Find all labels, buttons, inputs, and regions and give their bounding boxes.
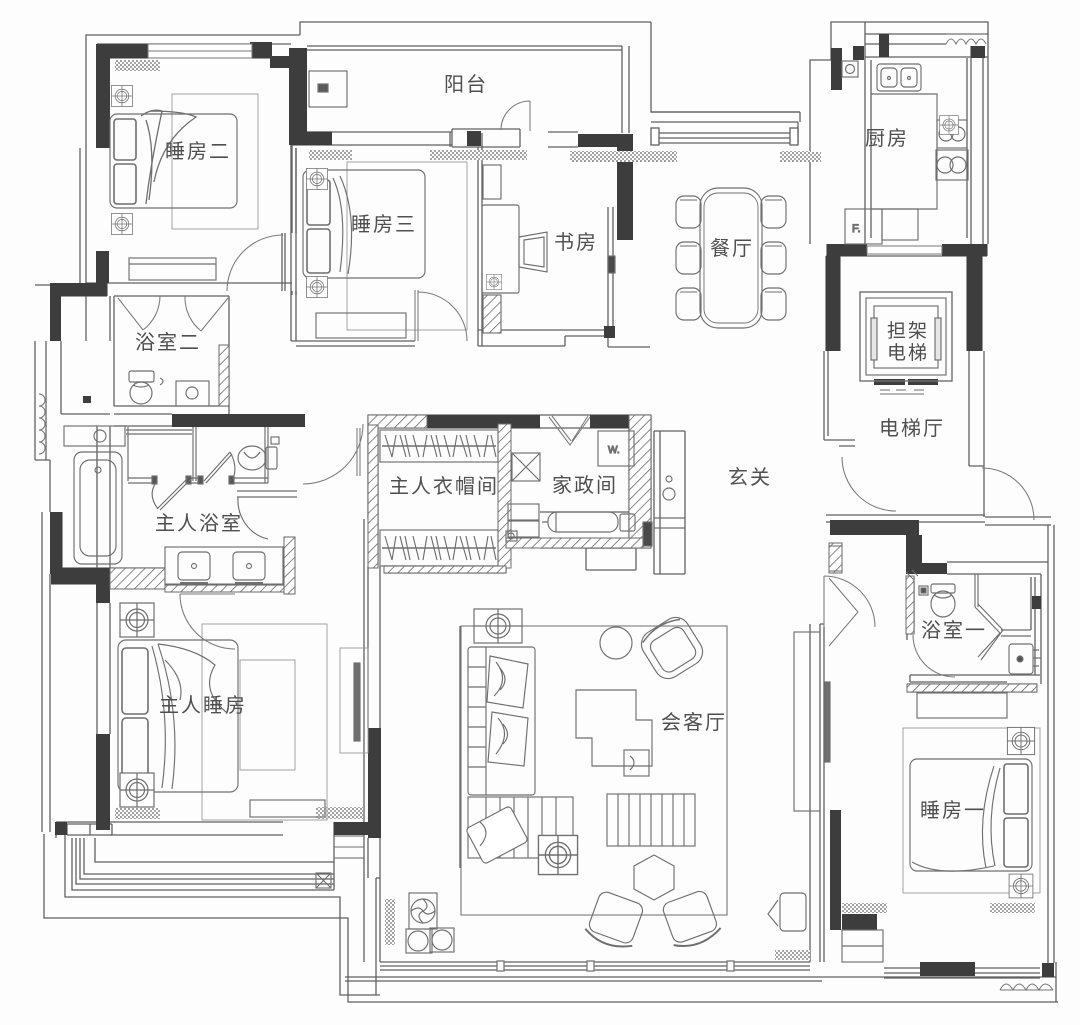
- svg-text:F.: F.: [852, 223, 861, 235]
- svg-text:厨房: 厨房: [865, 127, 909, 150]
- svg-text:主人睡房: 主人睡房: [159, 694, 247, 717]
- svg-text:玄关: 玄关: [728, 466, 772, 489]
- svg-text:浴室一: 浴室一: [921, 619, 987, 642]
- svg-text:餐厅: 餐厅: [710, 237, 754, 260]
- svg-text:阳台: 阳台: [444, 73, 488, 96]
- svg-text:睡房二: 睡房二: [165, 140, 231, 163]
- svg-text:担架: 担架: [887, 320, 929, 342]
- svg-text:W.: W.: [608, 445, 620, 456]
- svg-text:家政间: 家政间: [552, 474, 618, 497]
- svg-text:主人衣帽间: 主人衣帽间: [389, 475, 499, 498]
- svg-text:会客厅: 会客厅: [661, 711, 727, 734]
- svg-text:电梯厅: 电梯厅: [879, 417, 945, 440]
- svg-text:电梯: 电梯: [887, 342, 929, 364]
- svg-text:睡房三: 睡房三: [351, 213, 417, 236]
- svg-text:睡房一: 睡房一: [920, 799, 986, 822]
- svg-text:主人浴室: 主人浴室: [155, 512, 243, 535]
- svg-text:浴室二: 浴室二: [135, 331, 201, 354]
- svg-text:书房: 书房: [554, 231, 598, 254]
